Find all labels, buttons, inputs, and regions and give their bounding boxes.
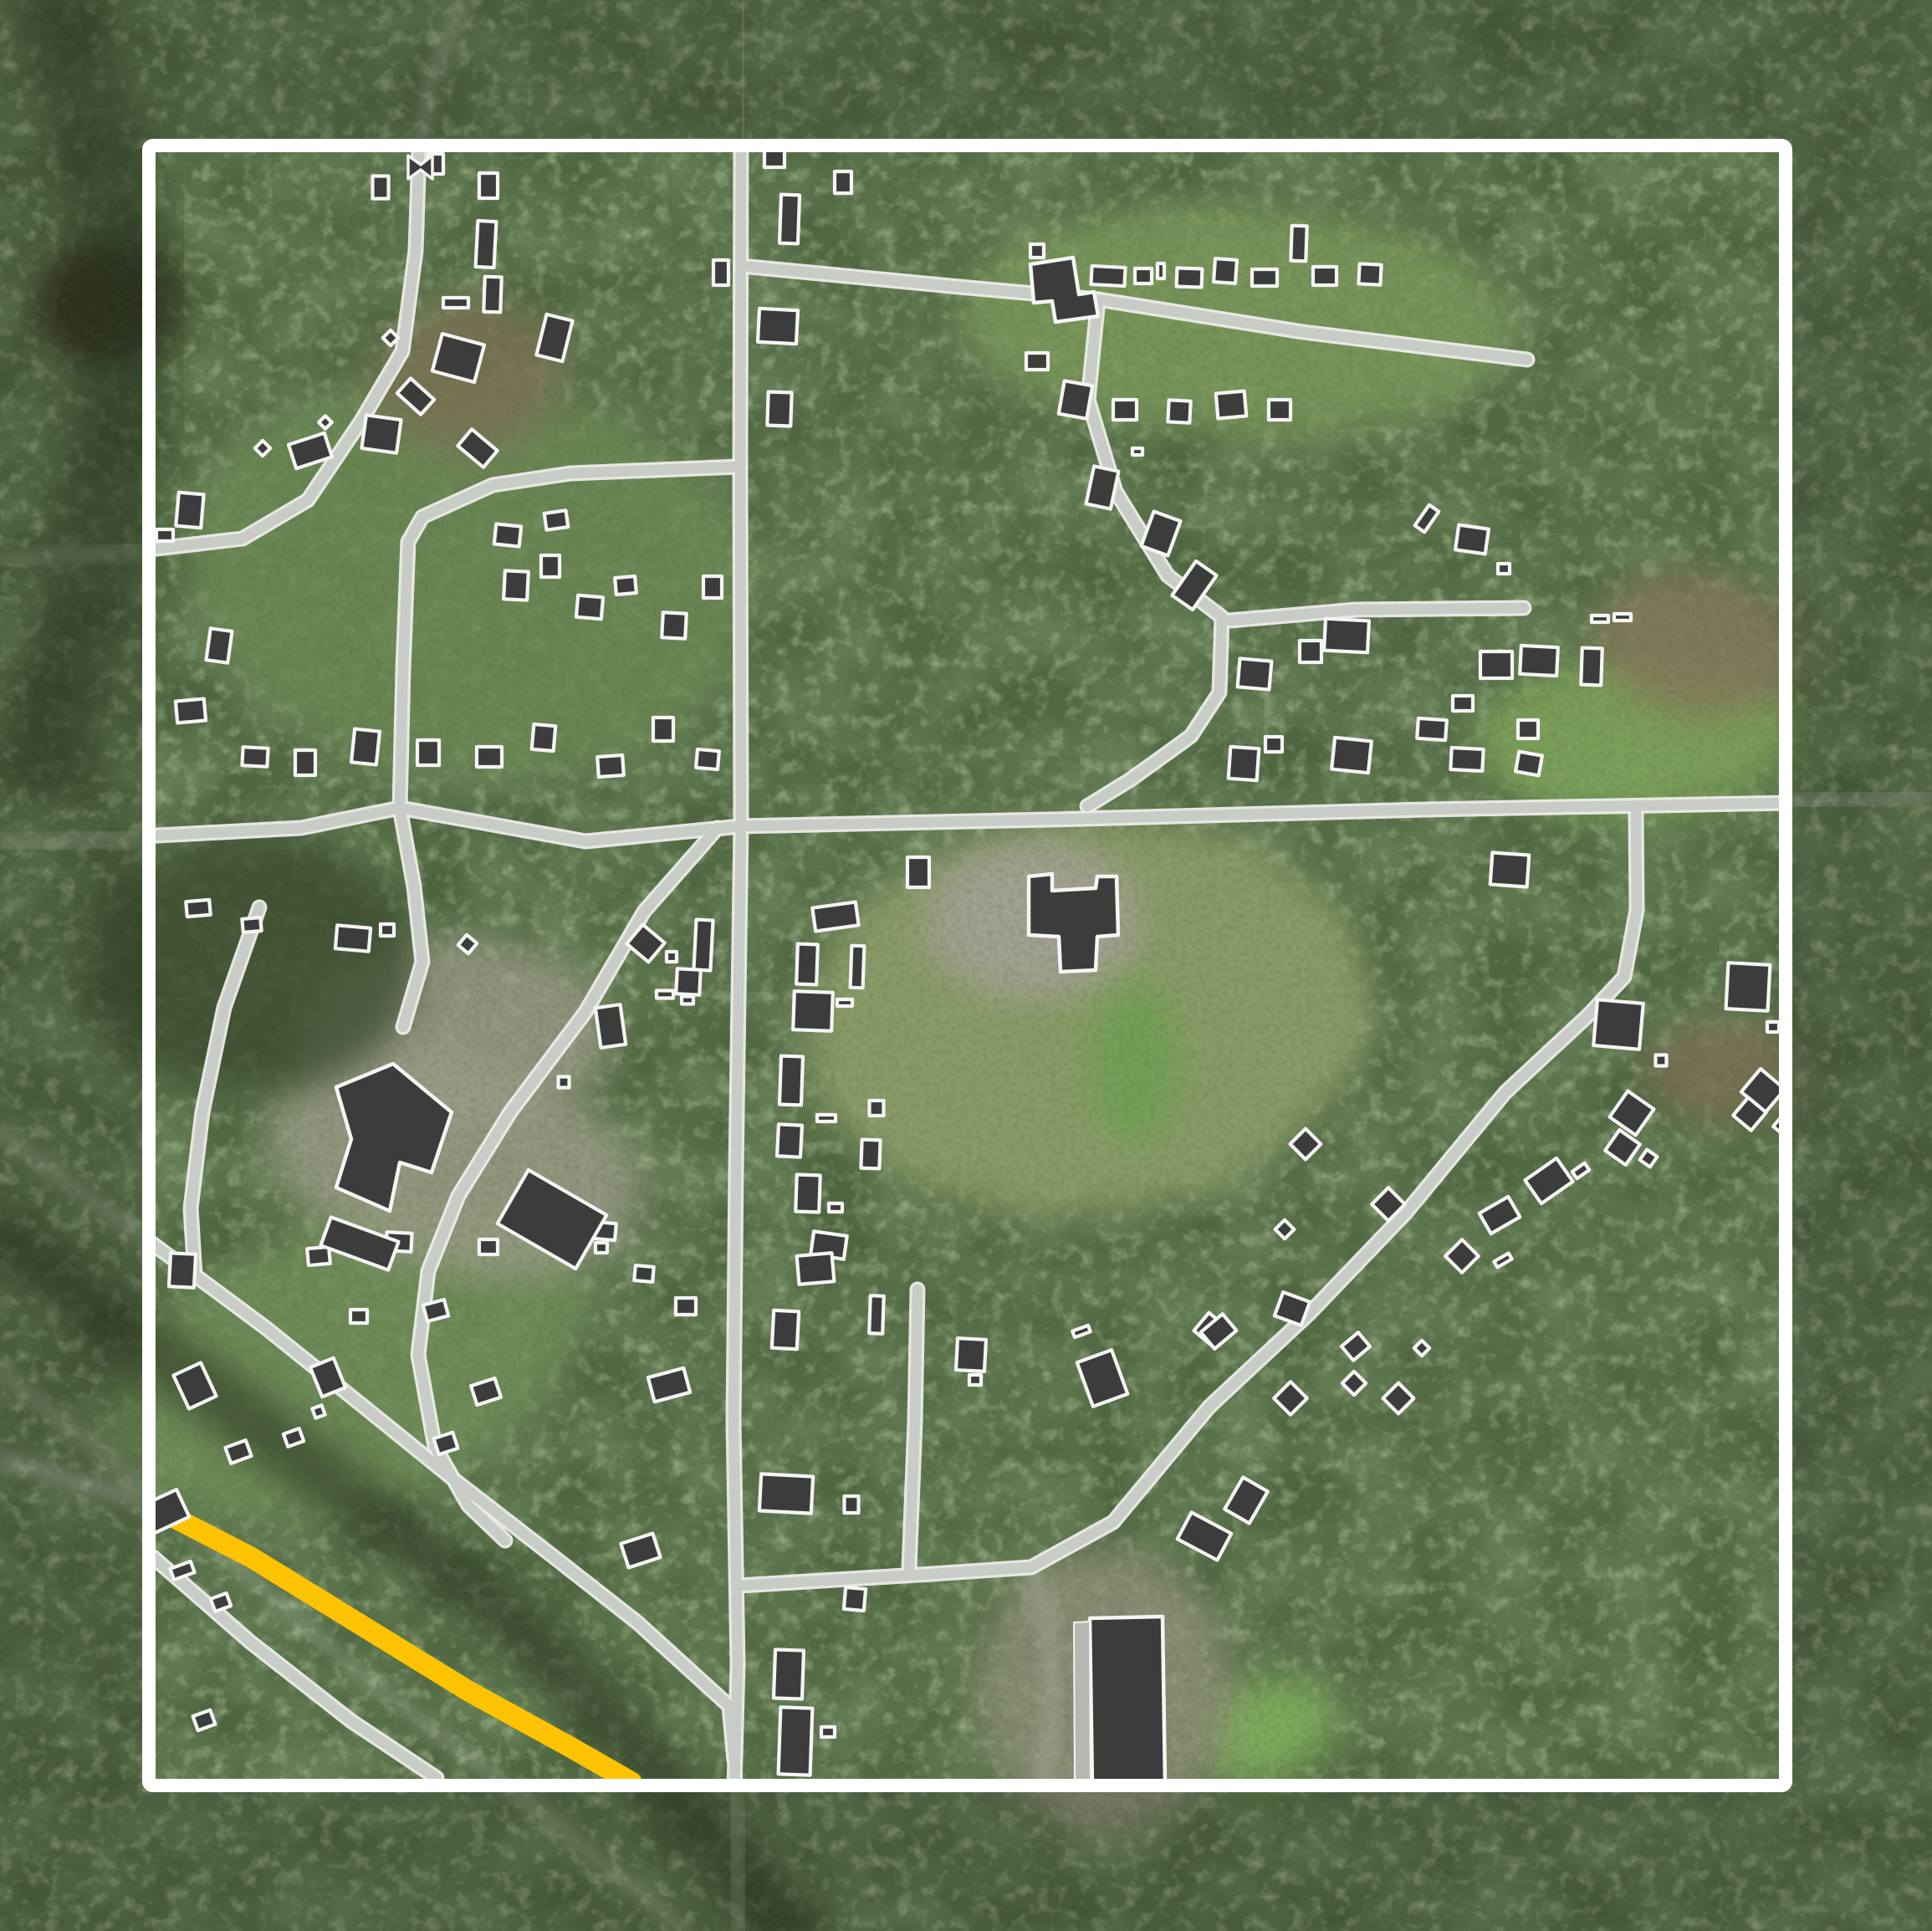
building-footprint[interactable] — [1480, 651, 1512, 678]
building-footprint[interactable] — [759, 1474, 813, 1513]
building-footprint[interactable] — [503, 570, 529, 600]
building-footprint[interactable] — [483, 277, 501, 313]
building-footprint[interactable] — [844, 1587, 866, 1611]
building-footprint[interactable] — [576, 595, 603, 620]
building-footprint[interactable] — [758, 309, 798, 344]
building-footprint[interactable] — [1331, 738, 1372, 773]
building-footprint[interactable] — [1265, 737, 1282, 752]
building-footprint[interactable] — [417, 740, 439, 765]
building-footprint[interactable] — [634, 1265, 653, 1282]
building-footprint[interactable] — [242, 917, 261, 932]
building-footprint[interactable] — [1026, 353, 1048, 370]
building-footprint[interactable] — [1726, 963, 1771, 1011]
building-footprint[interactable] — [1515, 752, 1542, 775]
building-footprint[interactable] — [532, 724, 556, 751]
building-footprint[interactable] — [1593, 999, 1643, 1050]
building-footprint[interactable] — [476, 221, 497, 268]
building-footprint[interactable] — [676, 1298, 696, 1315]
building-footprint[interactable] — [861, 1140, 880, 1169]
building-footprint[interactable] — [433, 1433, 457, 1454]
building-footprint[interactable] — [544, 510, 569, 529]
building-footprint[interactable] — [1490, 853, 1530, 887]
building-footprint[interactable] — [1581, 648, 1602, 686]
building-footprint[interactable] — [797, 1253, 835, 1285]
building-footprint[interactable] — [779, 195, 800, 244]
building-footprint[interactable] — [1214, 258, 1237, 284]
building-footprint[interactable] — [845, 1496, 859, 1513]
building-footprint[interactable] — [361, 415, 401, 452]
building-footprint[interactable] — [779, 1707, 813, 1775]
building-footprint[interactable] — [335, 925, 371, 951]
building-footprint[interactable] — [817, 1115, 836, 1121]
building-footprint[interactable] — [667, 952, 677, 962]
building-footprint[interactable] — [696, 749, 719, 769]
building-footprint[interactable] — [1417, 718, 1447, 740]
building-footprint[interactable] — [479, 1239, 498, 1254]
building-footprint[interactable] — [350, 1310, 367, 1323]
building-footprint[interactable] — [835, 171, 851, 193]
building-footprint[interactable] — [443, 298, 468, 308]
building-footprint[interactable] — [1252, 269, 1277, 286]
building-footprint[interactable] — [1135, 268, 1152, 284]
building-footprint[interactable] — [1324, 619, 1369, 653]
building-footprint[interactable] — [793, 991, 833, 1031]
building-footprint[interactable] — [1229, 747, 1260, 780]
building-footprint[interactable] — [956, 1338, 986, 1372]
building-footprint[interactable] — [837, 999, 852, 1006]
building-footprint[interactable] — [1358, 263, 1381, 284]
building-footprint[interactable] — [796, 944, 818, 985]
building-footprint[interactable] — [307, 1247, 330, 1265]
building-footprint[interactable] — [1520, 646, 1558, 676]
building-footprint[interactable] — [1450, 748, 1483, 771]
building-footprint[interactable] — [703, 576, 722, 598]
building-footprint[interactable] — [1030, 244, 1044, 258]
building-footprint[interactable] — [284, 1428, 304, 1447]
building-footprint[interactable] — [693, 920, 713, 971]
building-footprint[interactable] — [1614, 614, 1631, 621]
building-footprint[interactable] — [774, 1649, 804, 1699]
building-footprint[interactable] — [1238, 658, 1272, 689]
building-footprint[interactable] — [1313, 267, 1337, 285]
building-footprint[interactable] — [1455, 525, 1489, 554]
building-footprint[interactable] — [242, 747, 268, 767]
building-footprint[interactable] — [821, 1727, 835, 1737]
warehouse-roof-strip — [1074, 1622, 1091, 1782]
building-footprint[interactable] — [657, 991, 673, 999]
building-footprint[interactable] — [662, 612, 687, 638]
building-footprint[interactable] — [870, 1101, 884, 1116]
building-footprint[interactable] — [969, 1375, 981, 1385]
building-footprint[interactable] — [777, 1124, 802, 1157]
building-footprint[interactable] — [169, 1253, 196, 1288]
building-footprint[interactable] — [373, 176, 389, 199]
satellite-map-viewport[interactable] — [0, 0, 1932, 1931]
building-footprint[interactable] — [186, 900, 210, 917]
building-footprint[interactable] — [1269, 400, 1291, 420]
building-footprint[interactable] — [595, 1243, 607, 1253]
building-footprint[interactable] — [812, 902, 858, 932]
building-footprint[interactable] — [206, 628, 232, 662]
building-footprint[interactable] — [176, 699, 206, 723]
building-footprint[interactable] — [676, 968, 701, 994]
building-footprint[interactable] — [156, 529, 173, 541]
building-footprint[interactable] — [479, 173, 498, 198]
building-footprint[interactable] — [907, 857, 929, 887]
building-footprint[interactable] — [1086, 466, 1119, 508]
building-footprint[interactable] — [295, 750, 315, 775]
building-footprint[interactable] — [772, 1310, 799, 1350]
building-footprint[interactable] — [767, 392, 791, 427]
building-footprint[interactable] — [653, 718, 673, 741]
building-footprint[interactable] — [595, 1004, 626, 1048]
building-footprint[interactable] — [1291, 226, 1306, 262]
building-footprint[interactable] — [1592, 616, 1608, 622]
building-footprint[interactable] — [795, 1175, 820, 1213]
building-footprint[interactable] — [477, 747, 502, 767]
building-footprint[interactable] — [1168, 400, 1190, 422]
building-footprint[interactable] — [1113, 400, 1137, 420]
building-footprint[interactable] — [869, 1295, 884, 1334]
building-footprint[interactable] — [211, 1593, 231, 1612]
building-footprint[interactable] — [1453, 696, 1473, 711]
building-footprint[interactable] — [1656, 1055, 1667, 1066]
building-footprint[interactable] — [494, 524, 521, 546]
building-footprint[interactable] — [682, 997, 693, 1004]
building-footprint[interactable] — [1767, 1022, 1779, 1032]
building-footprint[interactable] — [381, 924, 394, 936]
building-footprint[interactable] — [351, 729, 380, 765]
building-footprint[interactable] — [1158, 263, 1164, 278]
building-footprint[interactable] — [851, 946, 865, 988]
building-footprint[interactable] — [541, 555, 560, 577]
building-footprint[interactable] — [829, 1203, 842, 1212]
building-footprint[interactable] — [1216, 391, 1246, 419]
building-footprint-warehouse-building[interactable] — [1090, 1617, 1165, 1785]
building-footprint[interactable] — [779, 1056, 803, 1106]
building-footprint[interactable] — [312, 1405, 325, 1418]
building-footprint[interactable] — [176, 493, 203, 528]
building-footprint[interactable] — [1498, 564, 1510, 574]
building-footprint[interactable] — [1091, 266, 1125, 286]
building-footprint[interactable] — [713, 260, 728, 285]
building-footprint[interactable] — [1300, 641, 1321, 662]
map-svg[interactable] — [0, 0, 1932, 1931]
building-footprint[interactable] — [615, 576, 636, 595]
building-footprint[interactable] — [597, 755, 624, 777]
building-footprint[interactable] — [1132, 448, 1142, 455]
building-footprint[interactable] — [1177, 268, 1203, 287]
building-footprint[interactable] — [1059, 381, 1092, 418]
building-footprint[interactable] — [1518, 720, 1538, 738]
building-footprint[interactable] — [423, 1300, 448, 1321]
building-footprint[interactable] — [559, 1077, 570, 1088]
